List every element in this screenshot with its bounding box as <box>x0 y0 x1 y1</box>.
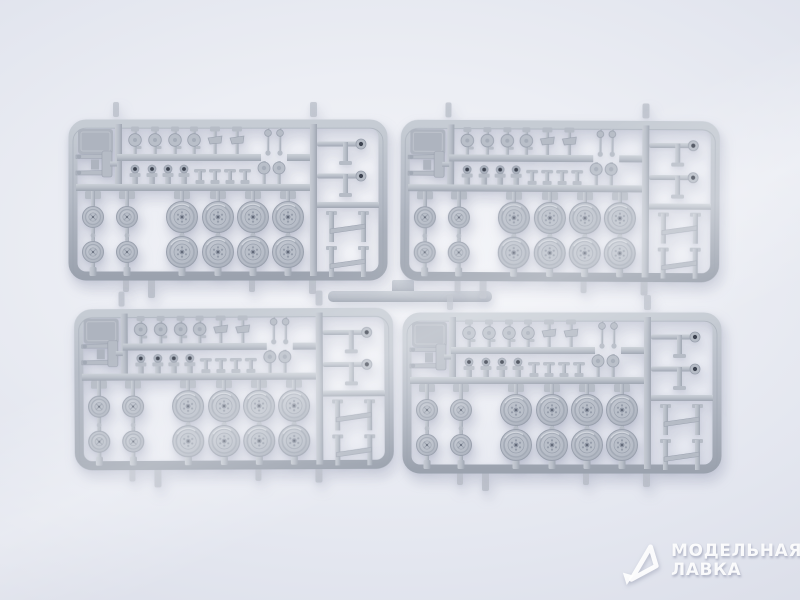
sprue-top-left <box>63 114 393 290</box>
watermark-line2: ЛАВКА <box>671 561 800 580</box>
sprue-bottom-right <box>397 307 727 483</box>
sprue-top-right <box>395 114 726 292</box>
watermark-text: МОДЕЛЬНАЯ ЛАВКА <box>671 542 800 579</box>
sprue-bottom-left <box>69 302 400 480</box>
modelnaya-lavka-logo-icon <box>620 542 662 588</box>
photo-scene: МОДЕЛЬНАЯ ЛАВКА <box>0 0 800 600</box>
watermark-line1: МОДЕЛЬНАЯ <box>671 542 800 561</box>
watermark: МОДЕЛЬНАЯ ЛАВКА <box>620 542 800 588</box>
